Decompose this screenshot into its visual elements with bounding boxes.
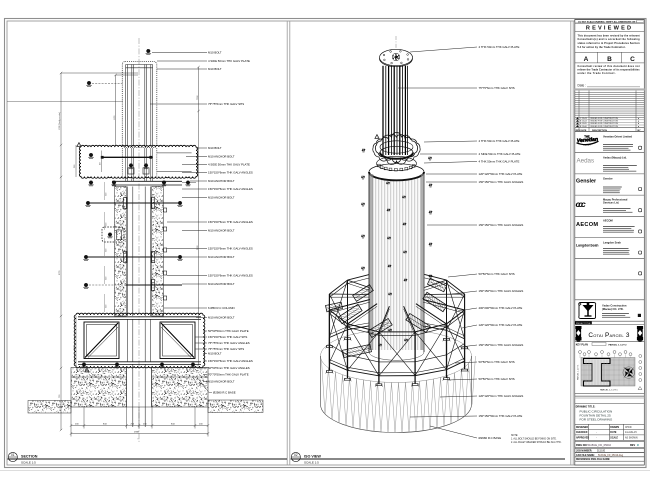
svg-text:M10 ANCHOR BOLT: M10 ANCHOR BOLT	[208, 255, 235, 259]
svg-text:150*150*6mm THK GALV ANGLES: 150*150*6mm THK GALV ANGLES	[208, 246, 253, 250]
svg-text:DRAWN: DRAWN	[610, 426, 619, 429]
svg-text:150*150*6mm THK GALV ANGLES: 150*150*6mm THK GALV ANGLES	[208, 273, 253, 277]
svg-text:SCALE 1:5: SCALE 1:5	[304, 461, 319, 465]
svg-text:75*75*6mm THK GALV SHS: 75*75*6mm THK GALV SHS	[208, 102, 244, 106]
svg-text:THE: THE	[584, 135, 589, 139]
svg-text:50*50*6mm THK GALV SHS: 50*50*6mm THK GALV SHS	[479, 272, 515, 276]
svg-text:150*150*6mm THK GALV ANGLES: 150*150*6mm THK GALV ANGLES	[479, 223, 524, 227]
svg-text:ISO VIEW: ISO VIEW	[304, 455, 321, 459]
svg-text:4 SIDE 50mm THK GALV PLATE: 4 SIDE 50mm THK GALV PLATE	[479, 152, 521, 156]
svg-text:4 THK 50mm THK GALV PLATE: 4 THK 50mm THK GALV PLATE	[479, 139, 520, 143]
svg-text:Ø2980 R.C BASE: Ø2980 R.C BASE	[213, 390, 236, 394]
svg-text:º: º	[138, 437, 139, 441]
svg-text:150*150*6mm THK GALV ANGLES: 150*150*6mm THK GALV ANGLES	[208, 187, 253, 191]
svg-text:14-AUG-15: 14-AUG-15	[625, 431, 637, 434]
svg-text:150*150*6mm THK GALV ANGLES: 150*150*6mm THK GALV ANGLES	[208, 359, 253, 363]
svg-text:SCALE: SCALE	[610, 436, 618, 439]
svg-text:DESIGNED: DESIGNED	[576, 427, 588, 429]
svg-text:REVIEWED: REVIEWED	[586, 26, 633, 32]
svg-text:M10 ANCHOR BOLT: M10 ANCHOR BOLT	[208, 315, 235, 319]
svg-text:Venetian Orient Limited: Venetian Orient Limited	[603, 134, 632, 138]
svg-text:02: 02	[294, 453, 298, 457]
svg-text:▲: ▲	[638, 117, 640, 120]
svg-text:Aedas (Macau) Ltd.: Aedas (Macau) Ltd.	[603, 156, 627, 160]
svg-text:150*150*6mm THK GALV ANGLES: 150*150*6mm THK GALV ANGLES	[208, 170, 253, 174]
svg-text:M A C A O: M A C A O	[583, 144, 591, 147]
svg-text:M10 BOLT: M10 BOLT	[208, 50, 222, 54]
svg-text:50*50*6mm THK GALV SHS: 50*50*6mm THK GALV SHS	[479, 360, 515, 364]
svg-text:120*120*50mm THK GALV PLATE: 120*120*50mm THK GALV PLATE	[479, 323, 523, 327]
svg-text:CHKD: CHKD	[625, 427, 632, 429]
svg-text:CAD FILE NAME:: CAD FILE NAME:	[576, 454, 595, 457]
svg-text:relieve the Trade Contractor o: relieve the Trade Contractor of its resp…	[578, 69, 641, 72]
svg-text:REFERENCE DWG FILE NAME:: REFERENCE DWG FILE NAME:	[576, 458, 610, 461]
svg-text:M10 ANCHOR BOLT: M10 ANCHOR BOLT	[208, 379, 235, 383]
svg-text:PARCEL 1, LOT 1: PARCEL 1, LOT 1	[600, 389, 618, 392]
svg-text:M10 ANCHOR BOLT: M10 ANCHOR BOLT	[208, 195, 235, 199]
svg-text:M10 BOLT: M10 BOLT	[208, 146, 222, 150]
svg-text:120*120*50mm THK GALV PLATE: 120*120*50mm THK GALV PLATE	[479, 172, 523, 176]
svg-text:M10 ANCHOR BOLT: M10 ANCHOR BOLT	[208, 282, 235, 286]
svg-text:4 SIDE 50mm THK GALV PLATE: 4 SIDE 50mm THK GALV PLATE	[208, 59, 250, 63]
svg-text:This document has been revised: This document has been revised by the re…	[578, 34, 640, 37]
svg-text:APPROVED: APPROVED	[576, 436, 589, 439]
svg-text:AS SHOWN: AS SHOWN	[625, 436, 638, 439]
svg-text:Consultants(s) and is accorded: Consultants(s) and is accorded the follo…	[578, 38, 641, 41]
svg-text:Yadao Construction: Yadao Construction	[602, 304, 627, 308]
svg-text:5115UE_FD_05010: 5115UE_FD_05010	[588, 443, 612, 447]
svg-text:150*150*6mm THK GALV SHS: 150*150*6mm THK GALV SHS	[208, 335, 247, 339]
svg-text:AECOM: AECOM	[576, 222, 598, 228]
svg-text:2. ALL FILLET WELDED SHOULD BE: 2. ALL FILLET WELDED SHOULD BE 3mm THK.	[511, 441, 562, 444]
svg-text:▲: ▲	[638, 120, 640, 123]
svg-text:Ø2980 R.C BASE: Ø2980 R.C BASE	[479, 436, 502, 440]
svg-text:400*200*50mm THK GALV PLATE: 400*200*50mm THK GALV PLATE	[479, 306, 523, 310]
svg-text:PARCEL 1, LOT 2: PARCEL 1, LOT 2	[609, 343, 628, 346]
svg-text:75*75*6mm THK GALV SHS: 75*75*6mm THK GALV SHS	[208, 347, 244, 351]
svg-text:150*150*50mm THK GALV PLATE: 150*150*50mm THK GALV PLATE	[479, 414, 523, 418]
svg-text:75*75*6mm THK GALV SHS: 75*75*6mm THK GALV SHS	[479, 86, 515, 90]
svg-text:SCALE 1:5: SCALE 1:5	[21, 461, 36, 465]
svg-text:50*50*50mm THK GALV PLATE: 50*50*50mm THK GALV PLATE	[208, 329, 249, 333]
svg-text:under the Trade Contract.: under the Trade Contract.	[578, 72, 616, 75]
svg-text:M10 ANCHOR BOLT: M10 ANCHOR BOLT	[208, 154, 235, 158]
svg-text:01: 01	[11, 453, 15, 457]
svg-text:75*75*6mm THK GALV ANGLES: 75*75*6mm THK GALV ANGLES	[208, 341, 250, 345]
svg-text:50*50*6mm THK GALV ANGLES: 50*50*6mm THK GALV ANGLES	[208, 366, 250, 370]
svg-text:150*150*6mm THK GALV ANGLES: 150*150*6mm THK GALV ANGLES	[479, 289, 524, 293]
svg-text:DWG NO:: DWG NO:	[576, 444, 588, 447]
svg-text:SECTION: SECTION	[21, 455, 38, 459]
svg-text:AECOM: AECOM	[603, 219, 613, 223]
svg-text:2938: 2938	[134, 432, 140, 434]
svg-text:B: B	[607, 56, 612, 63]
svg-text:M10 ANCHOR BOLT: M10 ANCHOR BOLT	[208, 179, 235, 183]
svg-text:DRAWING TITLE:: DRAWING TITLE:	[576, 405, 596, 408]
svg-text:Consultant review of this docu: Consultant review of this document does …	[578, 65, 640, 68]
svg-text:A: A	[584, 56, 589, 63]
svg-text:6 Ø50 R.C COLUMN: 6 Ø50 R.C COLUMN	[208, 306, 235, 310]
svg-text:4 THK 50mm THK GALV PLATE: 4 THK 50mm THK GALV PLATE	[479, 159, 520, 163]
svg-text:FOR STEEL DRAWING: FOR STEEL DRAWING	[580, 417, 613, 421]
svg-text:LangdonSeah: LangdonSeah	[576, 244, 598, 248]
svg-text:Cotai Parcel 3: Cotai Parcel 3	[588, 332, 629, 339]
svg-text:KEY PLAN: KEY PLAN	[576, 343, 588, 346]
svg-text:50*50*6mm THK GALV SHS: 50*50*6mm THK GALV SHS	[479, 377, 515, 381]
svg-text:NOTE:: NOTE:	[511, 435, 518, 437]
svg-text:CHECKED: CHECKED	[576, 432, 588, 434]
svg-text:M10 ANCHOR BOLT: M10 ANCHOR BOLT	[208, 228, 235, 232]
svg-text:Services Ltd.: Services Ltd.	[603, 201, 619, 205]
svg-text:Date :: Date :	[578, 84, 587, 88]
svg-text:M10 BOLT: M10 BOLT	[208, 67, 222, 71]
svg-text:▲: ▲	[638, 125, 640, 128]
svg-text:120*120*6mm THK GALV ANGLES: 120*120*6mm THK GALV ANGLES	[479, 394, 524, 398]
svg-text:5.4 for action by the Trade Co: 5.4 for action by the Trade Contractor.	[578, 46, 626, 49]
svg-text:1786 (Verify on site): 1786 (Verify on site)	[58, 112, 61, 130]
svg-text:70*70*50mm THK GALV PLATE: 70*70*50mm THK GALV PLATE	[208, 372, 249, 376]
svg-text:4 THK 50mm THK GALV PLATE: 4 THK 50mm THK GALV PLATE	[479, 45, 520, 49]
svg-text:Gensler: Gensler	[576, 179, 597, 185]
svg-text:Langdon Seah: Langdon Seah	[603, 241, 621, 245]
svg-text:PARCEL 1, LOT 3: PARCEL 1, LOT 3	[577, 365, 580, 380]
svg-text:1. ALL BOLT SHOULD BE FIXING O: 1. ALL BOLT SHOULD BE FIXING ON SITE.	[511, 438, 557, 441]
svg-text:C: C	[630, 56, 635, 63]
svg-text:(Macau) CO. LTD.: (Macau) CO. LTD.	[602, 307, 624, 311]
svg-text:150*150*6mm THK GALV ANGLES: 150*150*6mm THK GALV ANGLES	[208, 220, 253, 224]
svg-text:REV: REV	[630, 444, 635, 447]
svg-text:DATE: DATE	[610, 431, 617, 434]
svg-text:Aedas: Aedas	[577, 158, 595, 165]
svg-text:4 SIDE 50mm THK GALV PLATE: 4 SIDE 50mm THK GALV PLATE	[208, 162, 250, 166]
svg-text:Gensler: Gensler	[603, 177, 613, 181]
svg-text:150*150*6mm THK GALV ANGLES: 150*150*6mm THK GALV ANGLES	[479, 343, 524, 347]
svg-text:M10 BOLT: M10 BOLT	[208, 351, 222, 355]
svg-text:status referred to in Project: status referred to in Project Procedures…	[578, 42, 641, 45]
svg-text:150*150*6mm THK GALV ANGLES: 150*150*6mm THK GALV ANGLES	[479, 180, 524, 184]
svg-text:▲: ▲	[638, 122, 640, 125]
